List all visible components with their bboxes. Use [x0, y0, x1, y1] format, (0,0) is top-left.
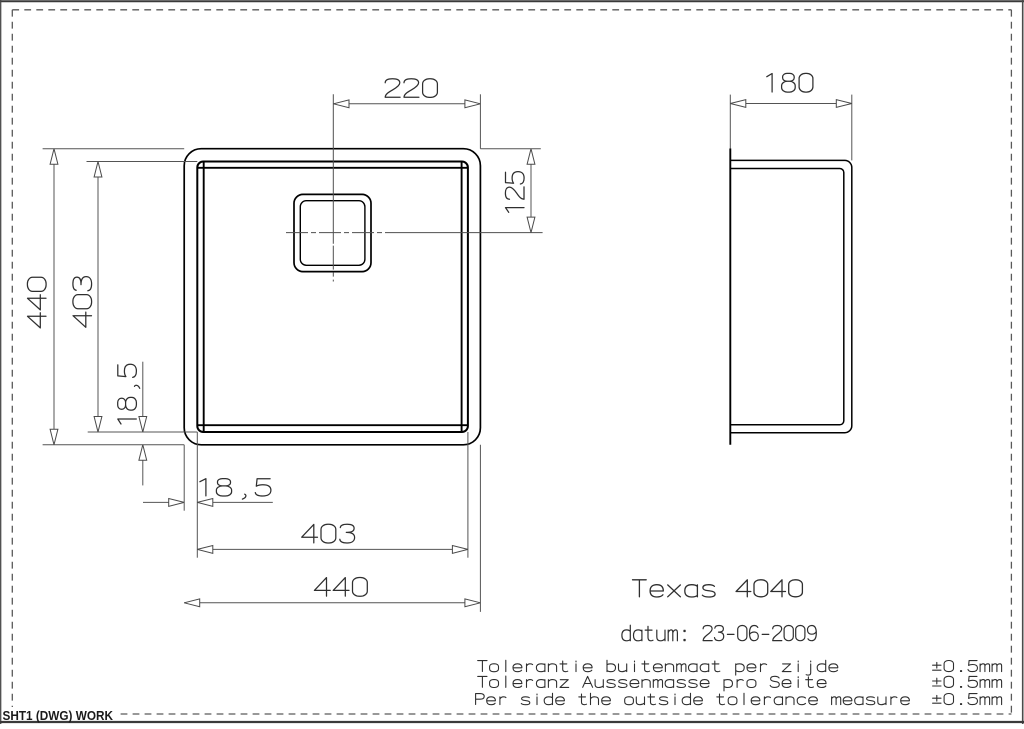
svg-text:SHT1 (DWG) WORK: SHT1 (DWG) WORK	[3, 708, 114, 723]
